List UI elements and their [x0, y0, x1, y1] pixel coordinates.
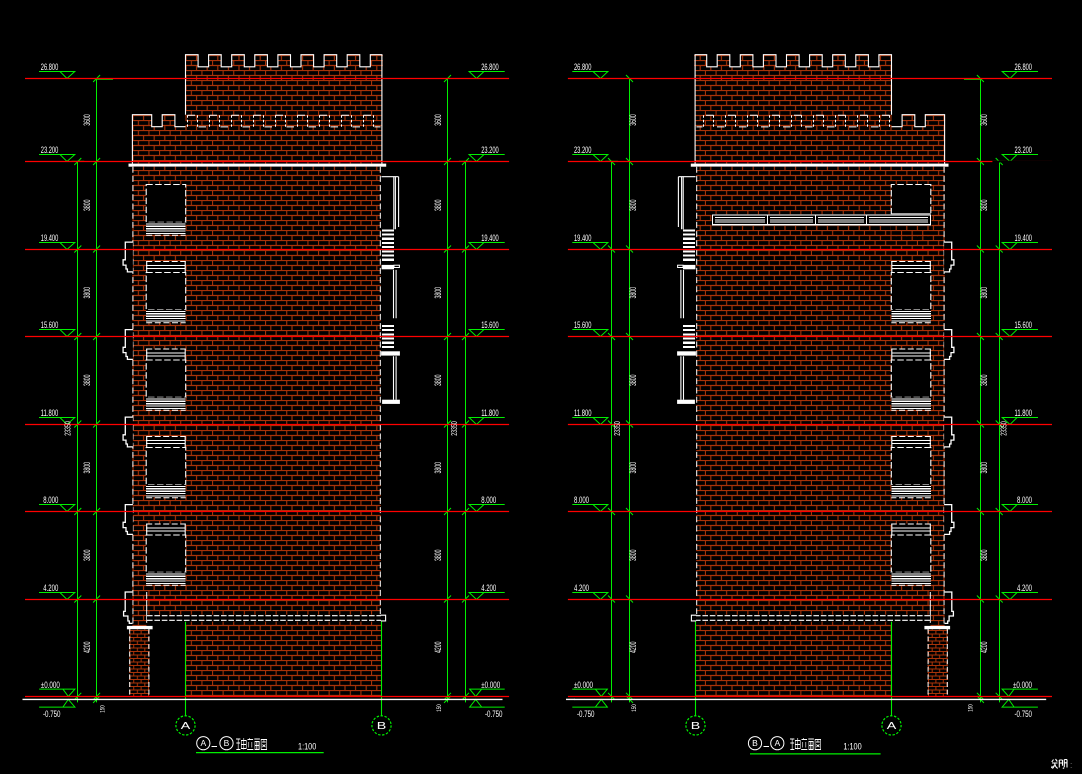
svg-text:26.800: 26.800 [574, 61, 592, 72]
svg-text:4200: 4200 [628, 641, 638, 653]
svg-text:3800: 3800 [628, 287, 638, 299]
svg-text:4200: 4200 [82, 641, 92, 653]
svg-text:8.000: 8.000 [481, 494, 496, 505]
svg-text:4.200: 4.200 [43, 582, 58, 593]
svg-text:B: B [691, 721, 701, 732]
svg-text:11.800: 11.800 [481, 407, 499, 418]
svg-text:-0.750: -0.750 [43, 708, 61, 719]
svg-text:4.200: 4.200 [574, 582, 589, 593]
svg-text:11.800: 11.800 [574, 407, 592, 418]
svg-text:-0.750: -0.750 [1015, 708, 1033, 719]
svg-text:3800: 3800 [82, 549, 92, 561]
svg-text:3800: 3800 [979, 287, 989, 299]
svg-text:3600: 3600 [82, 114, 92, 126]
svg-text:±0.000: ±0.000 [481, 679, 500, 690]
svg-text:23.200: 23.200 [41, 144, 59, 155]
svg-text:15.600: 15.600 [1015, 319, 1033, 330]
svg-text:4200: 4200 [979, 641, 989, 653]
svg-text:15.600: 15.600 [481, 319, 499, 330]
svg-text:-0.750: -0.750 [577, 708, 595, 719]
svg-text:-0.750: -0.750 [485, 708, 503, 719]
svg-text:4.200: 4.200 [481, 582, 496, 593]
svg-text:8.000: 8.000 [1017, 494, 1032, 505]
svg-text:3800: 3800 [82, 287, 92, 299]
svg-text:A: A [200, 738, 206, 748]
svg-text:A: A [887, 721, 897, 732]
svg-text:19.400: 19.400 [481, 232, 499, 243]
svg-text:3800: 3800 [433, 287, 443, 299]
svg-text:19.400: 19.400 [574, 232, 592, 243]
svg-text:8.000: 8.000 [43, 494, 58, 505]
svg-text:23350: 23350 [450, 421, 459, 436]
svg-text:3800: 3800 [433, 199, 443, 211]
svg-text:15.600: 15.600 [41, 319, 59, 330]
svg-text:B: B [224, 738, 230, 748]
svg-text:3800: 3800 [979, 462, 989, 474]
svg-text:19.400: 19.400 [41, 232, 59, 243]
svg-text:150: 150 [968, 704, 975, 712]
svg-text:150: 150 [436, 704, 443, 712]
svg-text:3800: 3800 [628, 199, 638, 211]
svg-text:23350: 23350 [1000, 421, 1009, 436]
svg-text:26.800: 26.800 [41, 61, 59, 72]
svg-text:26.800: 26.800 [1015, 61, 1033, 72]
svg-text:3800: 3800 [82, 374, 92, 386]
svg-text:11.800: 11.800 [1015, 407, 1033, 418]
svg-text:3600: 3600 [979, 114, 989, 126]
svg-text:±0.000: ±0.000 [574, 679, 593, 690]
svg-text:A: A [181, 721, 191, 732]
svg-text:3800: 3800 [433, 374, 443, 386]
svg-text:±0.000: ±0.000 [1013, 679, 1032, 690]
svg-text:3600: 3600 [433, 114, 443, 126]
svg-text:150: 150 [631, 704, 638, 712]
svg-text:1:100: 1:100 [843, 741, 861, 751]
svg-text:19.400: 19.400 [1015, 232, 1033, 243]
svg-text:4.200: 4.200 [1017, 582, 1032, 593]
svg-text:3800: 3800 [433, 462, 443, 474]
svg-text:3800: 3800 [628, 549, 638, 561]
svg-text:1:100: 1:100 [298, 741, 316, 751]
svg-text:A: A [774, 738, 780, 748]
svg-text:3800: 3800 [628, 462, 638, 474]
svg-text:23350: 23350 [613, 421, 622, 436]
svg-text:3800: 3800 [82, 199, 92, 211]
svg-text:3800: 3800 [979, 549, 989, 561]
svg-text:4200: 4200 [433, 641, 443, 653]
svg-text:3800: 3800 [82, 462, 92, 474]
svg-text:3800: 3800 [433, 549, 443, 561]
svg-text:B: B [377, 721, 387, 732]
svg-text:15.600: 15.600 [574, 319, 592, 330]
svg-text:±0.000: ±0.000 [41, 679, 60, 690]
svg-text:3800: 3800 [979, 199, 989, 211]
svg-text:8.000: 8.000 [574, 494, 589, 505]
svg-text:11.800: 11.800 [41, 407, 59, 418]
svg-text:3800: 3800 [979, 374, 989, 386]
svg-text:26.800: 26.800 [481, 61, 499, 72]
svg-text:23.200: 23.200 [574, 144, 592, 155]
svg-text:150: 150 [100, 705, 107, 713]
svg-text:3800: 3800 [628, 374, 638, 386]
svg-text:3600: 3600 [628, 114, 638, 126]
svg-text:23350: 23350 [63, 421, 72, 436]
svg-text:23.200: 23.200 [481, 144, 499, 155]
svg-text:B: B [752, 738, 758, 748]
svg-text:23.200: 23.200 [1015, 144, 1033, 155]
